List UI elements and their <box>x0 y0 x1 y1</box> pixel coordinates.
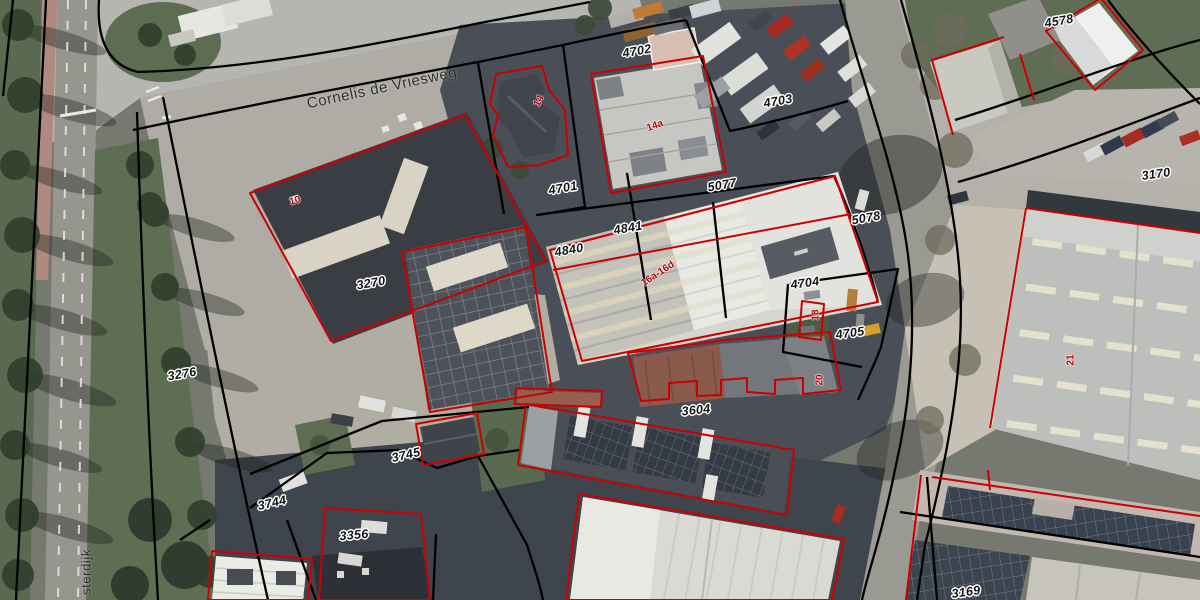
tree <box>141 199 169 227</box>
tree <box>161 541 209 589</box>
building-bottomleft-window <box>276 571 296 585</box>
tree <box>0 430 30 460</box>
building-bottom-white-gable <box>570 497 660 600</box>
bare-tree <box>933 13 967 47</box>
tree <box>2 9 34 41</box>
bare-tree <box>901 41 929 69</box>
tree <box>175 427 205 457</box>
building-bottomleft-window <box>227 569 253 585</box>
building-dark-skylight <box>362 568 369 575</box>
tree <box>575 15 595 35</box>
bare-tree <box>916 406 944 434</box>
tree <box>138 23 162 47</box>
tree <box>485 428 509 452</box>
tree <box>7 357 43 393</box>
tree <box>161 347 191 377</box>
tree <box>511 161 529 179</box>
building-14a-panel <box>596 76 624 100</box>
tree <box>151 273 179 301</box>
tree <box>174 44 196 66</box>
bare-tree <box>949 344 981 376</box>
tree <box>5 498 39 532</box>
map-viewport[interactable]: 4702470347015077507848414840470447053604… <box>0 0 1200 600</box>
building-dark-skylight <box>337 571 344 578</box>
tree <box>7 77 43 113</box>
building-dark-east <box>312 547 432 600</box>
bare-tree <box>925 225 955 255</box>
tree <box>128 498 172 542</box>
tree <box>0 150 30 180</box>
aerial-imagery <box>0 0 1200 600</box>
vehicle <box>361 520 388 534</box>
